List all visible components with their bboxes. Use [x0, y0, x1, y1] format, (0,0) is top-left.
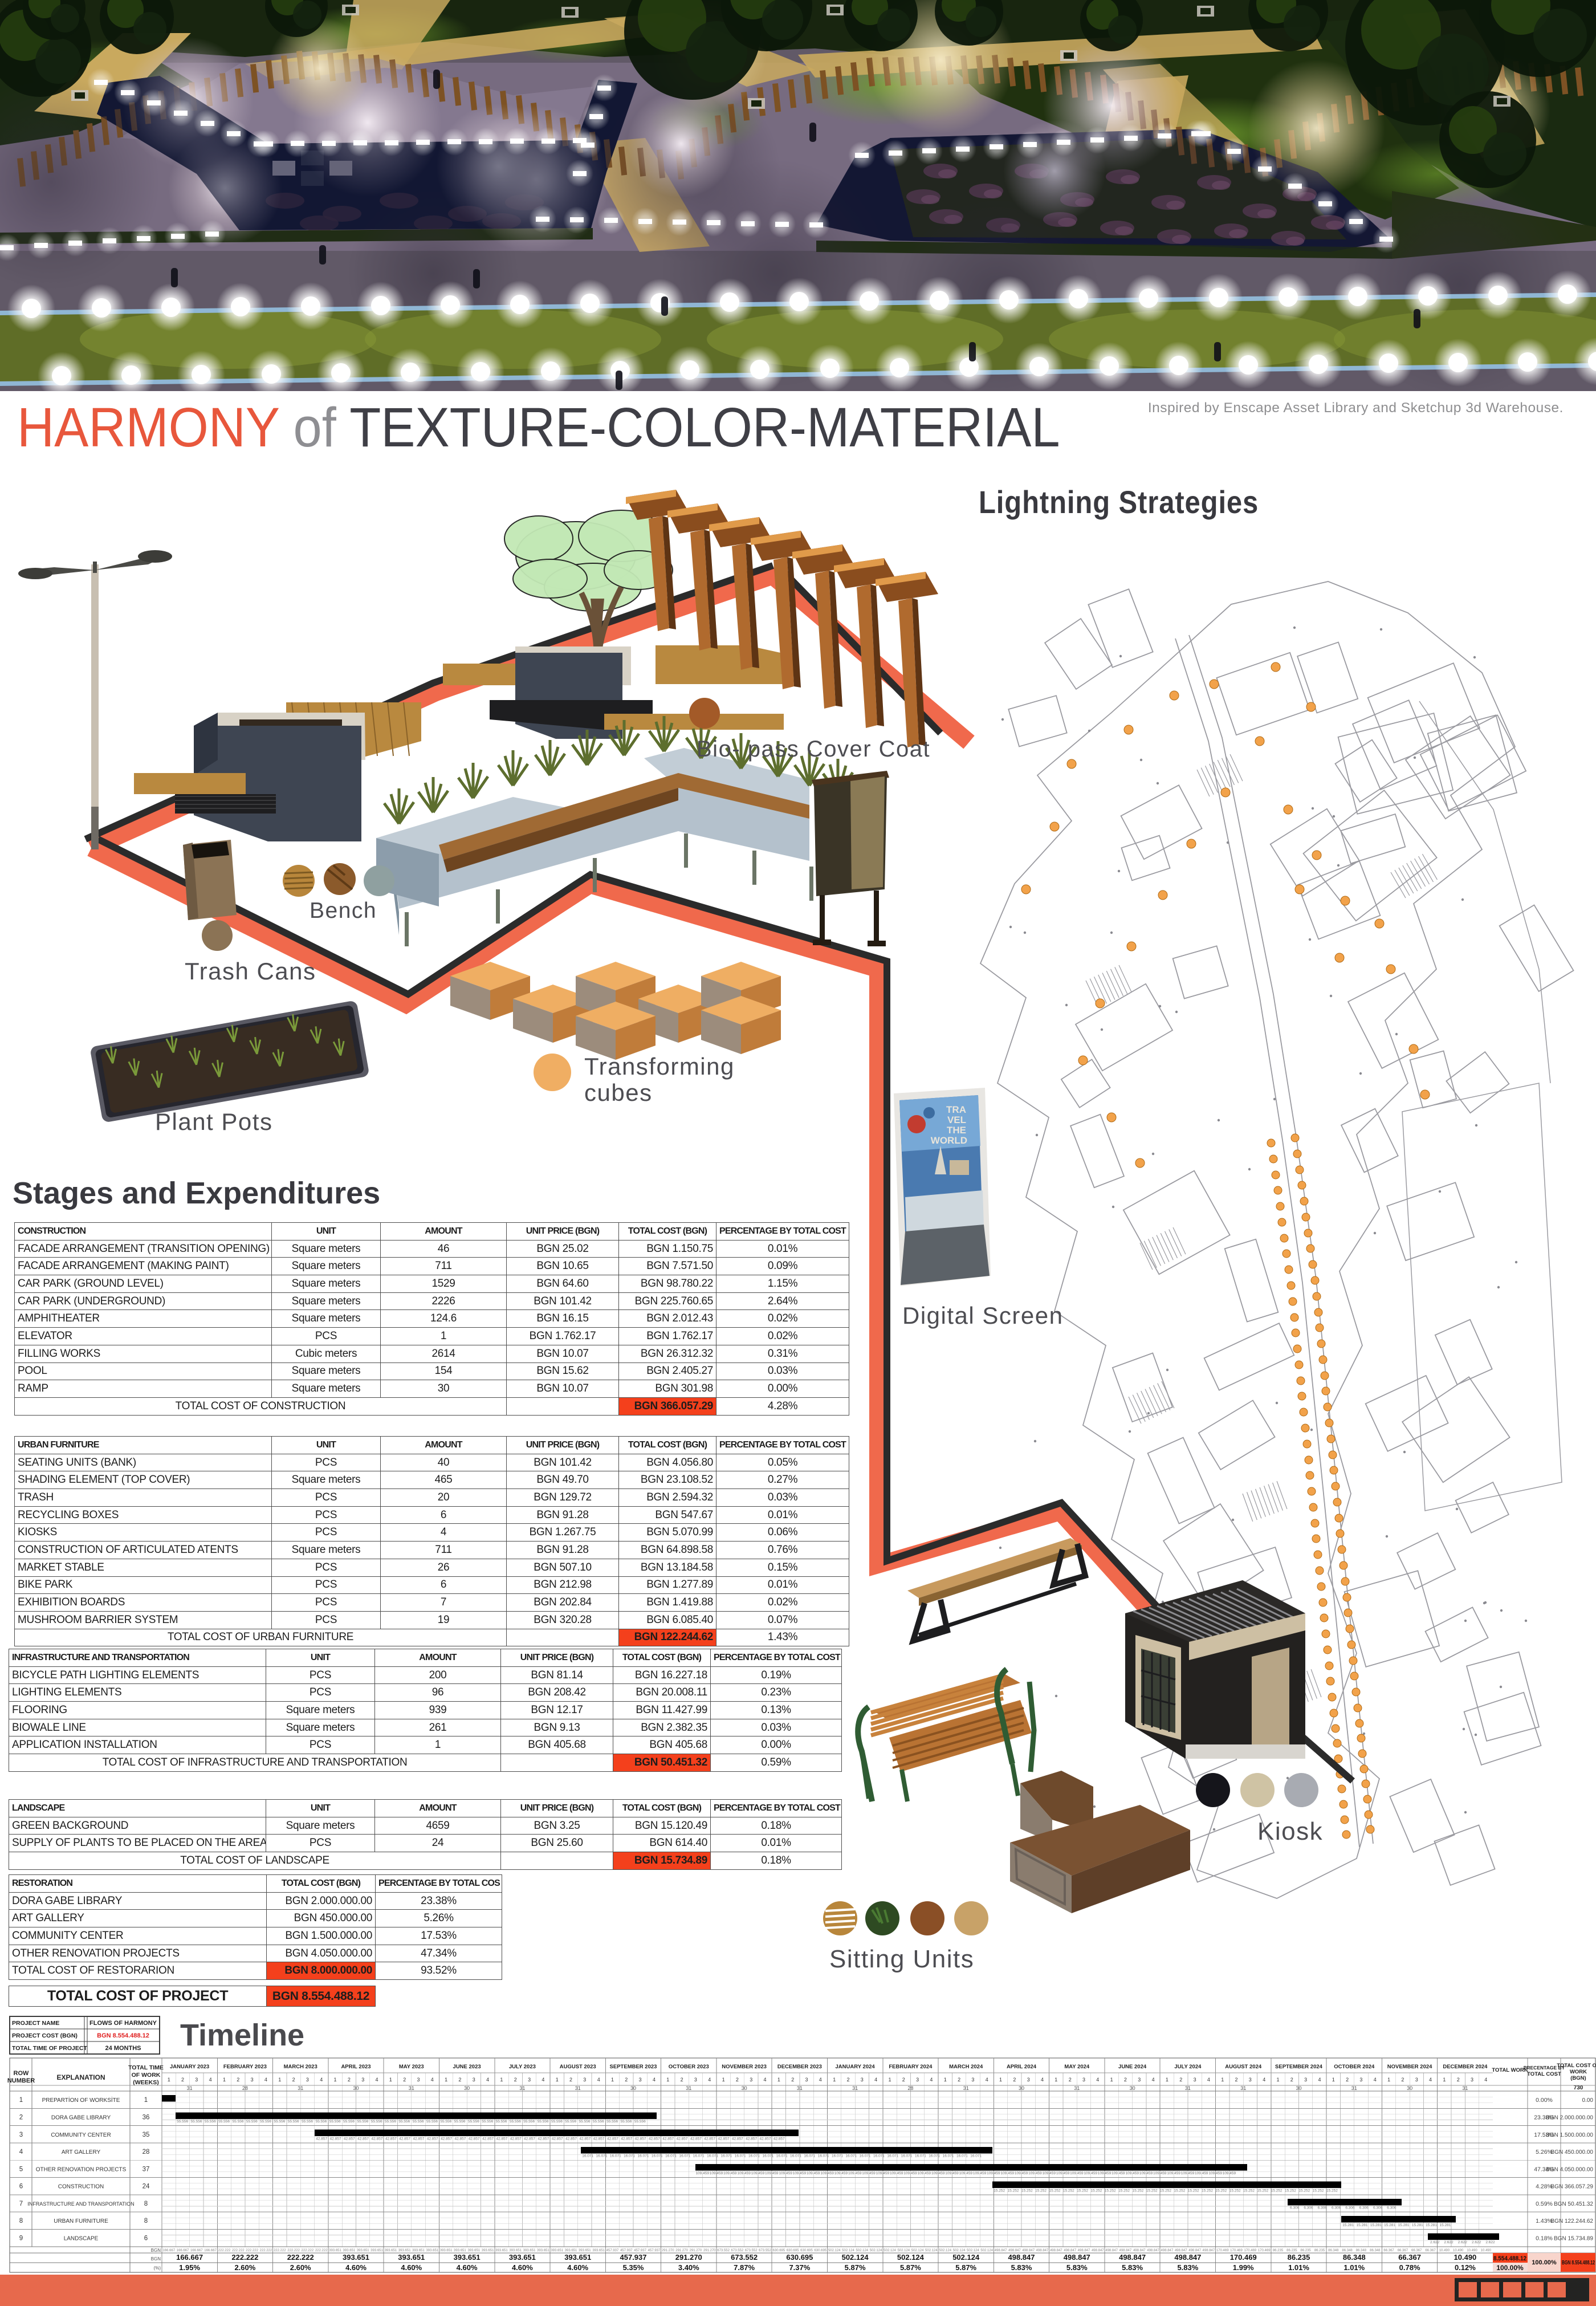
- svg-text:86.235: 86.235: [1300, 2249, 1311, 2252]
- svg-text:109.459: 109.459: [723, 2171, 737, 2175]
- svg-text:109.459: 109.459: [1153, 2171, 1167, 2175]
- svg-text:4: 4: [1374, 2077, 1377, 2083]
- svg-text:SEPTEMBER 2024: SEPTEMBER 2024: [1275, 2064, 1323, 2070]
- svg-text:4: 4: [375, 2077, 378, 2083]
- svg-text:55.556: 55.556: [329, 2120, 341, 2124]
- svg-text:15.252: 15.252: [1326, 2189, 1338, 2193]
- svg-text:291.270: 291.270: [690, 2249, 702, 2252]
- svg-text:2: 2: [1401, 2077, 1404, 2083]
- svg-text:3: 3: [583, 2077, 586, 2083]
- svg-text:55.556: 55.556: [440, 2120, 451, 2124]
- svg-text:109.459: 109.459: [1001, 2171, 1015, 2175]
- svg-text:222.222: 222.222: [260, 2249, 272, 2252]
- svg-text:673.552: 673.552: [717, 2249, 730, 2252]
- svg-text:1: 1: [1332, 2077, 1335, 2083]
- svg-text:15.252: 15.252: [1160, 2189, 1171, 2193]
- svg-text:55.556: 55.556: [482, 2120, 493, 2124]
- svg-text:393.651: 393.651: [551, 2249, 563, 2252]
- svg-text:55.556: 55.556: [454, 2120, 466, 2124]
- svg-text:55.556: 55.556: [191, 2120, 202, 2124]
- svg-text:55.556: 55.556: [551, 2120, 563, 2124]
- svg-text:393.651: 393.651: [370, 2249, 383, 2252]
- svg-text:7.87%: 7.87%: [734, 2263, 755, 2272]
- svg-text:16.071: 16.071: [596, 2154, 608, 2158]
- svg-text:1: 1: [1221, 2077, 1224, 2083]
- svg-text:393.651: 393.651: [343, 2253, 369, 2262]
- svg-text:55.556: 55.556: [634, 2120, 646, 2124]
- svg-text:55.556: 55.556: [510, 2120, 521, 2124]
- svg-text:BGN 15.734.89: BGN 15.734.89: [1554, 2236, 1593, 2242]
- svg-text:1.43%: 1.43%: [1536, 2218, 1553, 2224]
- svg-text:4: 4: [486, 2077, 489, 2083]
- svg-text:31: 31: [409, 2085, 414, 2091]
- svg-text:3: 3: [1359, 2077, 1362, 2083]
- svg-text:170.469: 170.469: [1244, 2249, 1256, 2252]
- svg-text:3: 3: [1027, 2077, 1030, 2083]
- svg-text:7.37%: 7.37%: [789, 2263, 810, 2272]
- svg-text:4.60%: 4.60%: [567, 2263, 588, 2272]
- svg-text:5.87%: 5.87%: [900, 2263, 921, 2272]
- svg-text:55.556: 55.556: [218, 2120, 230, 2124]
- svg-text:109.459: 109.459: [973, 2171, 987, 2175]
- svg-text:55.556: 55.556: [288, 2120, 299, 2124]
- svg-text:31: 31: [519, 2085, 525, 2091]
- svg-text:1: 1: [278, 2077, 281, 2083]
- svg-text:100.00%: 100.00%: [1532, 2259, 1557, 2266]
- svg-text:3: 3: [971, 2077, 974, 2083]
- svg-text:15.252: 15.252: [1229, 2189, 1241, 2193]
- svg-text:4.60%: 4.60%: [457, 2263, 478, 2272]
- svg-text:(%): (%): [154, 2266, 161, 2271]
- svg-text:16.071: 16.071: [652, 2154, 663, 2158]
- svg-text:2.60%: 2.60%: [290, 2263, 311, 2272]
- svg-text:42.857: 42.857: [316, 2137, 327, 2141]
- svg-text:109.459: 109.459: [890, 2171, 903, 2175]
- svg-text:498.847: 498.847: [1147, 2249, 1159, 2252]
- svg-text:5: 5: [19, 2166, 23, 2173]
- svg-text:55.556: 55.556: [538, 2120, 549, 2124]
- svg-text:673.552: 673.552: [745, 2249, 758, 2252]
- svg-text:166.667: 166.667: [190, 2249, 203, 2252]
- svg-text:109.459: 109.459: [848, 2171, 862, 2175]
- svg-text:15.281: 15.281: [1384, 2223, 1395, 2227]
- svg-text:673.552: 673.552: [759, 2249, 771, 2252]
- svg-text:15.252: 15.252: [1285, 2189, 1296, 2193]
- svg-text:42.857: 42.857: [344, 2137, 355, 2141]
- svg-text:42.857: 42.857: [399, 2137, 410, 2141]
- svg-text:1.01%: 1.01%: [1343, 2263, 1365, 2272]
- svg-text:42.857: 42.857: [579, 2137, 591, 2141]
- svg-text:16.071: 16.071: [818, 2154, 829, 2158]
- svg-text:1: 1: [611, 2077, 614, 2083]
- svg-text:(BGN): (BGN): [1570, 2075, 1586, 2081]
- svg-text:1: 1: [944, 2077, 947, 2083]
- svg-text:502.124: 502.124: [883, 2249, 896, 2252]
- svg-text:2: 2: [846, 2077, 849, 2083]
- svg-text:6: 6: [19, 2183, 23, 2190]
- svg-text:LANDSCAPE: LANDSCAPE: [64, 2236, 99, 2242]
- svg-text:86.348: 86.348: [1328, 2249, 1339, 2252]
- svg-text:3: 3: [19, 2132, 23, 2138]
- svg-text:291.270: 291.270: [675, 2253, 702, 2262]
- svg-text:4: 4: [209, 2077, 212, 2083]
- svg-text:3: 3: [1415, 2077, 1418, 2083]
- svg-text:109.459: 109.459: [737, 2171, 751, 2175]
- svg-text:30: 30: [742, 2085, 747, 2091]
- svg-text:42.857: 42.857: [773, 2137, 785, 2141]
- svg-text:16.071: 16.071: [860, 2154, 871, 2158]
- svg-text:42.857: 42.857: [454, 2137, 466, 2141]
- svg-text:OCTOBER 2024: OCTOBER 2024: [1334, 2064, 1375, 2070]
- svg-text:24: 24: [142, 2183, 150, 2190]
- svg-text:393.651: 393.651: [565, 2249, 577, 2252]
- svg-text:42.857: 42.857: [635, 2137, 646, 2141]
- svg-text:3: 3: [306, 2077, 309, 2083]
- svg-text:55.556: 55.556: [413, 2120, 424, 2124]
- svg-text:COMMUNITY CENTER: COMMUNITY CENTER: [51, 2132, 111, 2138]
- svg-text:2.622: 2.622: [1430, 2240, 1440, 2244]
- svg-text:DECEMBER 2024: DECEMBER 2024: [1443, 2064, 1488, 2070]
- svg-text:3: 3: [916, 2077, 919, 2083]
- svg-text:MARCH 2024: MARCH 2024: [949, 2064, 983, 2070]
- svg-text:166.667: 166.667: [176, 2253, 203, 2262]
- svg-text:OF WORK: OF WORK: [132, 2072, 161, 2079]
- svg-text:FLOWS OF HARMONY: FLOWS OF HARMONY: [89, 2020, 157, 2027]
- svg-text:NOVEMBER 2023: NOVEMBER 2023: [722, 2064, 767, 2070]
- svg-text:3: 3: [1249, 2077, 1252, 2083]
- svg-text:502.124: 502.124: [953, 2249, 966, 2252]
- svg-text:MARCH 2023: MARCH 2023: [284, 2064, 317, 2070]
- svg-text:1: 1: [666, 2077, 669, 2083]
- svg-text:502.124: 502.124: [897, 2253, 925, 2262]
- svg-text:42.857: 42.857: [330, 2137, 341, 2141]
- svg-text:86.235: 86.235: [1286, 2249, 1297, 2252]
- svg-text:393.651: 393.651: [412, 2249, 425, 2252]
- svg-text:498.847: 498.847: [1188, 2249, 1201, 2252]
- svg-text:15.281: 15.281: [1357, 2223, 1368, 2227]
- svg-text:16.071: 16.071: [776, 2154, 788, 2158]
- svg-text:3: 3: [750, 2077, 752, 2083]
- svg-text:393.651: 393.651: [398, 2249, 411, 2252]
- svg-text:55.556: 55.556: [398, 2120, 410, 2124]
- svg-text:5.83%: 5.83%: [1011, 2263, 1032, 2272]
- svg-text:393.651: 393.651: [482, 2249, 494, 2252]
- svg-text:109.459: 109.459: [765, 2171, 779, 2175]
- svg-text:109.459: 109.459: [834, 2171, 848, 2175]
- svg-text:3: 3: [251, 2077, 254, 2083]
- svg-text:TOTAL COST: TOTAL COST: [1527, 2071, 1561, 2077]
- svg-text:393.651: 393.651: [454, 2253, 481, 2262]
- svg-text:APRIL 2023: APRIL 2023: [341, 2064, 370, 2070]
- svg-text:16.071: 16.071: [790, 2154, 801, 2158]
- svg-text:42.857: 42.857: [427, 2137, 438, 2141]
- svg-text:502.124: 502.124: [870, 2249, 882, 2252]
- svg-text:502.124: 502.124: [939, 2249, 951, 2252]
- svg-text:498.847: 498.847: [1105, 2249, 1118, 2252]
- svg-text:INFRASTRUCTURE AND TRANSPORTAT: INFRASTRUCTURE AND TRANSPORTATION: [27, 2201, 134, 2207]
- svg-text:42.857: 42.857: [649, 2137, 660, 2141]
- svg-text:15.281: 15.281: [1398, 2223, 1410, 2227]
- svg-text:4.28%: 4.28%: [1536, 2183, 1553, 2190]
- svg-text:16.071: 16.071: [610, 2154, 621, 2158]
- svg-text:498.847: 498.847: [1175, 2249, 1187, 2252]
- svg-text:MAY 2023: MAY 2023: [399, 2064, 424, 2070]
- svg-text:457.937: 457.937: [620, 2249, 633, 2252]
- svg-text:16.071: 16.071: [679, 2154, 690, 2158]
- svg-text:31: 31: [575, 2085, 581, 2091]
- svg-text:15.252: 15.252: [1146, 2189, 1158, 2193]
- svg-text:2.622: 2.622: [1458, 2240, 1468, 2244]
- svg-text:5.35%: 5.35%: [623, 2263, 644, 2272]
- svg-text:8: 8: [144, 2218, 148, 2224]
- svg-text:393.651: 393.651: [592, 2249, 605, 2252]
- svg-text:2: 2: [1179, 2077, 1182, 2083]
- svg-text:66.367: 66.367: [1411, 2249, 1422, 2252]
- svg-text:42.857: 42.857: [372, 2137, 383, 2141]
- svg-text:86.348: 86.348: [1342, 2249, 1353, 2252]
- svg-text:15.252: 15.252: [1174, 2189, 1185, 2193]
- svg-text:109.459: 109.459: [1070, 2171, 1084, 2175]
- svg-text:42.857: 42.857: [593, 2137, 605, 2141]
- svg-text:109.459: 109.459: [876, 2171, 890, 2175]
- svg-text:170.469: 170.469: [1230, 2249, 1243, 2252]
- svg-text:3: 3: [694, 2077, 697, 2083]
- svg-text:BGN 122.244.62: BGN 122.244.62: [1551, 2218, 1594, 2224]
- svg-text:170.469: 170.469: [1258, 2249, 1271, 2252]
- svg-text:4.60%: 4.60%: [345, 2263, 367, 2272]
- svg-text:109.459: 109.459: [1223, 2171, 1236, 2175]
- svg-text:222.222: 222.222: [231, 2253, 258, 2262]
- svg-text:6.306: 6.306: [1290, 2206, 1300, 2210]
- svg-text:MAY 2024: MAY 2024: [1064, 2064, 1090, 2070]
- svg-text:10.490: 10.490: [1453, 2249, 1464, 2252]
- svg-text:1.95%: 1.95%: [179, 2263, 200, 2272]
- svg-text:30: 30: [1130, 2085, 1135, 2091]
- svg-text:498.847: 498.847: [1203, 2249, 1215, 2252]
- svg-text:15.252: 15.252: [1188, 2189, 1199, 2193]
- svg-text:393.651: 393.651: [509, 2253, 536, 2262]
- svg-text:FEBRUARY 2024: FEBRUARY 2024: [889, 2064, 933, 2070]
- svg-text:2: 2: [237, 2077, 239, 2083]
- svg-text:6.306: 6.306: [1332, 2206, 1341, 2210]
- svg-text:16.071: 16.071: [582, 2154, 593, 2158]
- svg-text:1: 1: [445, 2077, 447, 2083]
- svg-text:2: 2: [902, 2077, 905, 2083]
- svg-text:42.857: 42.857: [357, 2137, 369, 2141]
- svg-text:222.222: 222.222: [274, 2249, 286, 2252]
- svg-text:16.071: 16.071: [804, 2154, 815, 2158]
- svg-text:30: 30: [353, 2085, 359, 2091]
- svg-text:31: 31: [187, 2085, 193, 2091]
- svg-text:502.124: 502.124: [828, 2249, 841, 2252]
- svg-text:3: 3: [195, 2077, 198, 2083]
- svg-text:393.651: 393.651: [440, 2249, 453, 2252]
- svg-text:502.124: 502.124: [911, 2249, 924, 2252]
- svg-text:393.651: 393.651: [384, 2249, 397, 2252]
- svg-text:55.556: 55.556: [621, 2120, 632, 2124]
- svg-text:16.071: 16.071: [887, 2154, 898, 2158]
- svg-text:393.651: 393.651: [329, 2249, 341, 2252]
- svg-text:8.554.488.12: 8.554.488.12: [1493, 2255, 1526, 2262]
- svg-text:42.857: 42.857: [621, 2137, 632, 2141]
- svg-text:55.556: 55.556: [496, 2120, 507, 2124]
- svg-text:37: 37: [142, 2166, 150, 2173]
- svg-text:9: 9: [19, 2235, 23, 2242]
- svg-text:2.622: 2.622: [1444, 2240, 1453, 2244]
- svg-text:1: 1: [1110, 2077, 1113, 2083]
- svg-text:42.857: 42.857: [565, 2137, 577, 2141]
- svg-text:42.857: 42.857: [413, 2137, 424, 2141]
- svg-text:4.60%: 4.60%: [512, 2263, 533, 2272]
- svg-text:BGN: BGN: [151, 2256, 161, 2262]
- svg-text:VEL: VEL: [947, 1115, 966, 1125]
- svg-text:498.847: 498.847: [1174, 2253, 1201, 2262]
- svg-text:16.071: 16.071: [735, 2154, 746, 2158]
- svg-text:42.857: 42.857: [760, 2137, 771, 2141]
- svg-text:55.556: 55.556: [565, 2120, 576, 2124]
- svg-text:CONSTRUCTION: CONSTRUCTION: [58, 2184, 104, 2190]
- svg-text:4: 4: [1152, 2077, 1155, 2083]
- svg-text:15.252: 15.252: [1257, 2189, 1268, 2193]
- svg-text:55.556: 55.556: [343, 2120, 355, 2124]
- svg-text:393.651: 393.651: [495, 2249, 508, 2252]
- svg-text:109.459: 109.459: [987, 2171, 1000, 2175]
- svg-text:2: 2: [1013, 2077, 1016, 2083]
- svg-text:15.252: 15.252: [1271, 2189, 1282, 2193]
- svg-text:24 MONTHS: 24 MONTHS: [105, 2045, 141, 2052]
- svg-text:4: 4: [819, 2077, 822, 2083]
- svg-text:4: 4: [541, 2077, 544, 2083]
- svg-text:28: 28: [142, 2149, 150, 2155]
- svg-text:15.281: 15.281: [1439, 2223, 1451, 2227]
- svg-text:166.667: 166.667: [204, 2249, 217, 2252]
- svg-text:16.071: 16.071: [638, 2154, 649, 2158]
- svg-text:55.556: 55.556: [302, 2120, 313, 2124]
- svg-text:1: 1: [1387, 2077, 1390, 2083]
- svg-text:42.857: 42.857: [469, 2137, 480, 2141]
- svg-text:109.459: 109.459: [1167, 2171, 1180, 2175]
- svg-text:55.556: 55.556: [315, 2120, 327, 2124]
- svg-text:170.469: 170.469: [1230, 2253, 1257, 2262]
- svg-text:31: 31: [1240, 2085, 1246, 2091]
- svg-text:630.695: 630.695: [787, 2249, 799, 2252]
- svg-text:10.490: 10.490: [1439, 2249, 1450, 2252]
- svg-text:498.847: 498.847: [1064, 2253, 1090, 2262]
- svg-text:3: 3: [361, 2077, 364, 2083]
- svg-text:42.857: 42.857: [704, 2137, 715, 2141]
- svg-text:630.695: 630.695: [814, 2249, 826, 2252]
- svg-text:2: 2: [791, 2077, 794, 2083]
- svg-text:15.252: 15.252: [1049, 2189, 1061, 2193]
- svg-text:109.459: 109.459: [862, 2171, 876, 2175]
- svg-text:222.222: 222.222: [302, 2249, 314, 2252]
- svg-text:4: 4: [1207, 2077, 1210, 2083]
- svg-text:498.847: 498.847: [1008, 2249, 1021, 2252]
- svg-text:31: 31: [1351, 2085, 1357, 2091]
- svg-text:55.556: 55.556: [385, 2120, 396, 2124]
- svg-text:498.847: 498.847: [1064, 2249, 1076, 2252]
- svg-text:15.252: 15.252: [1077, 2189, 1088, 2193]
- svg-text:42.857: 42.857: [524, 2137, 535, 2141]
- svg-text:42.857: 42.857: [746, 2137, 757, 2141]
- svg-text:2: 2: [736, 2077, 739, 2083]
- svg-text:291.270: 291.270: [703, 2249, 716, 2252]
- svg-text:109.459: 109.459: [931, 2171, 945, 2175]
- svg-text:86.235: 86.235: [1288, 2253, 1310, 2262]
- svg-text:0.78%: 0.78%: [1399, 2263, 1420, 2272]
- svg-text:31: 31: [797, 2085, 803, 2091]
- svg-text:498.847: 498.847: [995, 2249, 1007, 2252]
- svg-text:4: 4: [708, 2077, 711, 2083]
- svg-text:3: 3: [528, 2077, 531, 2083]
- svg-text:42.857: 42.857: [607, 2137, 618, 2141]
- svg-text:66.367: 66.367: [1398, 2253, 1421, 2262]
- svg-text:JANUARY 2023: JANUARY 2023: [170, 2064, 209, 2070]
- svg-text:42.857: 42.857: [510, 2137, 522, 2141]
- svg-text:55.556: 55.556: [357, 2120, 368, 2124]
- svg-text:1: 1: [389, 2077, 392, 2083]
- svg-text:2.60%: 2.60%: [234, 2263, 255, 2272]
- svg-text:1: 1: [777, 2077, 780, 2083]
- svg-text:FEBRUARY 2023: FEBRUARY 2023: [223, 2064, 267, 2070]
- svg-text:4: 4: [1484, 2077, 1487, 2083]
- svg-text:42.857: 42.857: [538, 2137, 549, 2141]
- svg-text:109.459: 109.459: [918, 2171, 931, 2175]
- svg-text:16.071: 16.071: [762, 2154, 773, 2158]
- svg-text:31: 31: [1074, 2085, 1080, 2091]
- svg-text:502.124: 502.124: [967, 2249, 979, 2252]
- svg-text:291.270: 291.270: [662, 2249, 674, 2252]
- svg-text:15.252: 15.252: [1008, 2189, 1019, 2193]
- svg-text:BGN 1.500.000.00: BGN 1.500.000.00: [1546, 2132, 1593, 2138]
- svg-text:16.071: 16.071: [720, 2154, 732, 2158]
- svg-text:4: 4: [264, 2077, 267, 2083]
- svg-text:15.252: 15.252: [1021, 2189, 1033, 2193]
- svg-text:222.222: 222.222: [232, 2249, 245, 2252]
- svg-text:393.651: 393.651: [467, 2249, 480, 2252]
- svg-text:4: 4: [431, 2077, 434, 2083]
- svg-text:8: 8: [19, 2218, 23, 2224]
- svg-text:393.651: 393.651: [537, 2249, 549, 2252]
- svg-text:730: 730: [1574, 2085, 1583, 2091]
- svg-text:502.124: 502.124: [952, 2253, 980, 2262]
- svg-text:30: 30: [1407, 2085, 1412, 2091]
- svg-text:3: 3: [473, 2077, 475, 2083]
- svg-text:4: 4: [1041, 2077, 1044, 2083]
- svg-text:15.281: 15.281: [1342, 2223, 1354, 2227]
- svg-text:222.222: 222.222: [287, 2253, 314, 2262]
- svg-text:55.556: 55.556: [579, 2120, 591, 2124]
- svg-text:109.459: 109.459: [1084, 2171, 1097, 2175]
- svg-text:42.857: 42.857: [662, 2137, 674, 2141]
- svg-text:2: 2: [625, 2077, 628, 2083]
- svg-text:6.306: 6.306: [1318, 2206, 1328, 2210]
- svg-text:NOVEMBER 2024: NOVEMBER 2024: [1387, 2064, 1432, 2070]
- svg-text:4: 4: [320, 2077, 323, 2083]
- svg-text:222.222: 222.222: [218, 2249, 231, 2252]
- svg-text:1.01%: 1.01%: [1288, 2263, 1309, 2272]
- svg-text:2: 2: [1069, 2077, 1072, 2083]
- svg-text:2: 2: [681, 2077, 683, 2083]
- svg-text:1: 1: [1054, 2077, 1057, 2083]
- svg-text:55.556: 55.556: [233, 2120, 244, 2124]
- svg-text:28: 28: [242, 2085, 248, 2091]
- svg-text:3: 3: [1082, 2077, 1085, 2083]
- svg-text:630.695: 630.695: [800, 2249, 813, 2252]
- svg-text:498.847: 498.847: [1050, 2249, 1062, 2252]
- svg-text:35: 35: [142, 2132, 150, 2138]
- svg-text:4: 4: [1263, 2077, 1265, 2083]
